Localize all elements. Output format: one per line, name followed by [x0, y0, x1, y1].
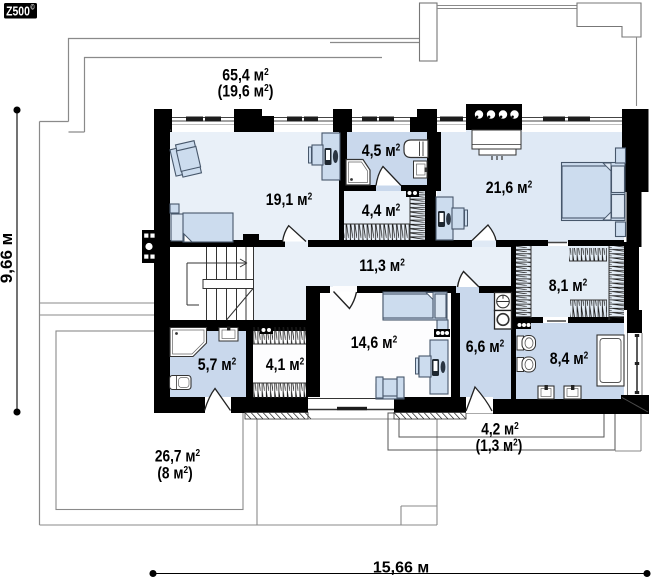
svg-text:15,66 м: 15,66 м [373, 560, 429, 577]
svg-text:4,5 м2: 4,5 м2 [362, 142, 401, 160]
svg-text:8,4 м2: 8,4 м2 [550, 350, 589, 368]
svg-text:4,1 м2: 4,1 м2 [266, 356, 305, 374]
svg-text:21,6 м2: 21,6 м2 [486, 179, 532, 197]
svg-text:5,7 м2: 5,7 м2 [198, 356, 237, 374]
svg-text:19,1 м2: 19,1 м2 [266, 191, 312, 209]
svg-text:©: © [30, 3, 34, 12]
svg-text:9,66 м: 9,66 м [0, 233, 16, 283]
svg-text:(8 м2): (8 м2) [157, 464, 192, 482]
svg-text:8,1 м2: 8,1 м2 [549, 277, 588, 295]
svg-text:14,6 м2: 14,6 м2 [351, 334, 397, 352]
svg-text:26,7 м2: 26,7 м2 [155, 447, 200, 465]
svg-text:6,6 м2: 6,6 м2 [466, 338, 505, 356]
svg-text:11,3 м2: 11,3 м2 [359, 257, 405, 275]
svg-text:4,4 м2: 4,4 м2 [362, 202, 401, 220]
svg-text:Z500: Z500 [6, 4, 30, 18]
